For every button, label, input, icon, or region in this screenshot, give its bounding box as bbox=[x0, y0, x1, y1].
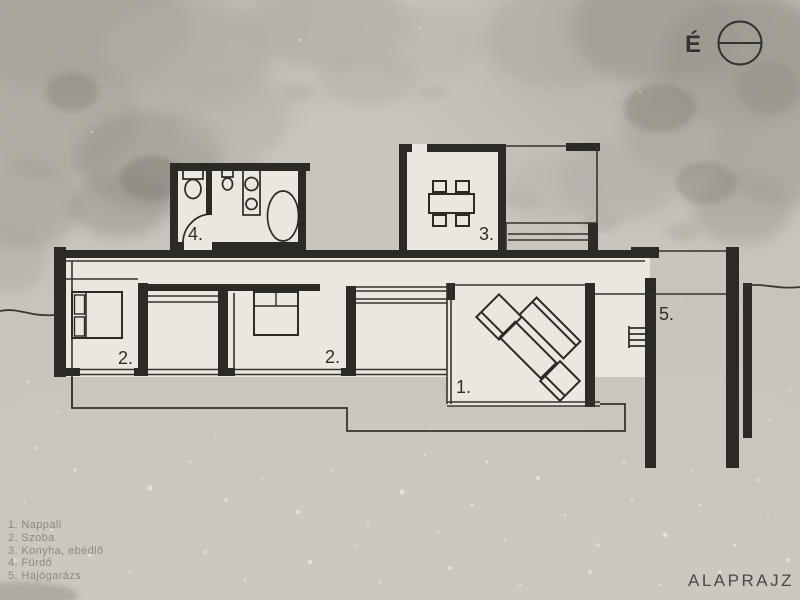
terrain-line-right bbox=[745, 285, 800, 288]
room-label-bedroom-left: 2. bbox=[118, 348, 133, 368]
north-label: É bbox=[685, 30, 701, 58]
plan-drawing: 1. 2. 2. 3. 4. 5. É bbox=[0, 0, 800, 600]
legend: 1. Nappali 2. Szoba 3. Konyha, ebédlő 4.… bbox=[8, 519, 103, 583]
legend-item: 4. Fürdő bbox=[8, 557, 103, 570]
room-label-living: 1. bbox=[456, 377, 471, 397]
room-label-boat-garage: 5. bbox=[659, 304, 674, 324]
room-label-bathroom: 4. bbox=[188, 224, 203, 244]
legend-item: 3. Konyha, ebédlő bbox=[8, 545, 103, 558]
legend-item: 5. Hajógarázs bbox=[8, 570, 103, 583]
legend-item: 1. Nappali bbox=[8, 519, 103, 532]
drawing-title: ALAPRAJZ bbox=[688, 571, 794, 591]
legend-item: 2. Szoba bbox=[8, 532, 103, 545]
terrain-line-left bbox=[0, 310, 54, 315]
photo-canvas: 1. 2. 2. 3. 4. 5. É 1. Nappali 2. Szoba … bbox=[0, 0, 800, 600]
room-label-bedroom-middle: 2. bbox=[325, 347, 340, 367]
room-label-kitchen: 3. bbox=[479, 224, 494, 244]
